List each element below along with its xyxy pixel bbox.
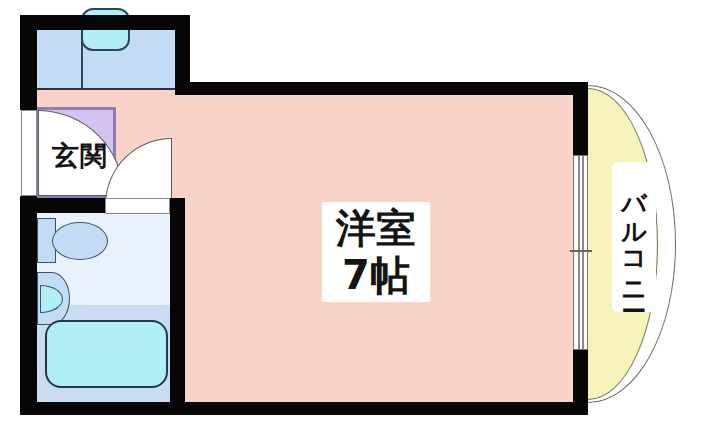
main-room-label: 洋室 7帖	[322, 202, 430, 302]
wall-right-upper	[573, 82, 588, 155]
wall-left-lower	[20, 196, 37, 415]
window-pane-line	[582, 156, 584, 349]
floor-plan: 玄関 バルコニー 洋室 7帖	[0, 0, 702, 435]
bathroom-door-opening	[105, 198, 170, 214]
toilet-icon	[52, 222, 108, 260]
balcony-label-box: バルコニー	[612, 162, 656, 312]
wall-kitchen-left	[20, 15, 37, 110]
wall-kitchen-top	[20, 15, 190, 30]
sliding-window-icon	[573, 155, 588, 350]
entrance-door-leaf-icon	[21, 110, 37, 196]
window-center-tick	[570, 250, 592, 252]
wall-bottom	[20, 402, 588, 415]
genkan-label: 玄関	[52, 138, 108, 174]
main-room-name: 洋室	[336, 205, 416, 252]
wall-right-lower	[573, 350, 588, 415]
window-pane-line	[578, 156, 580, 349]
balcony-label: バルコニー	[618, 175, 651, 299]
wall-main-top	[175, 82, 588, 95]
main-room-size: 7帖	[342, 252, 410, 299]
bathtub-icon	[45, 320, 168, 388]
